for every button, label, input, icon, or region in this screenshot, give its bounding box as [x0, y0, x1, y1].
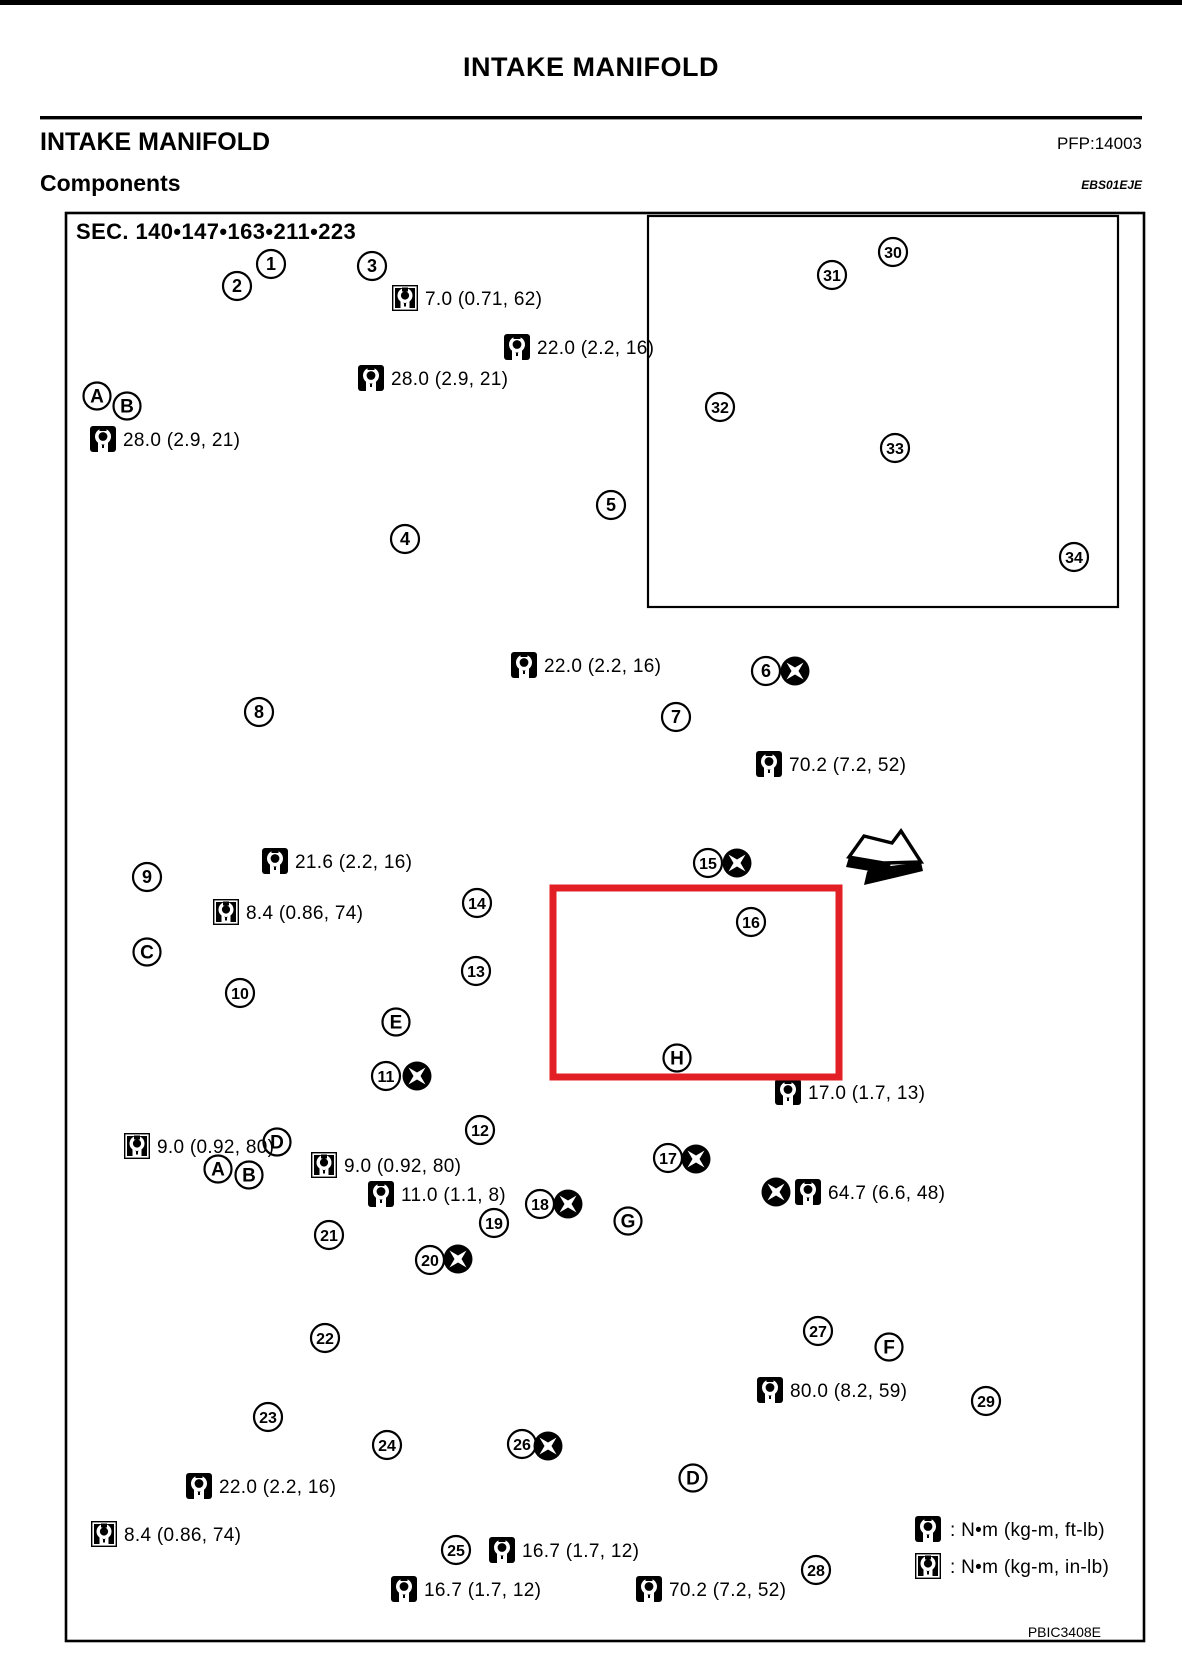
svg-text:INTAKE MANIFOLD: INTAKE MANIFOLD [463, 52, 719, 82]
svg-text:7: 7 [671, 707, 681, 727]
svg-text:20: 20 [421, 1253, 439, 1270]
svg-text:12: 12 [471, 1123, 489, 1140]
svg-text:14: 14 [468, 896, 486, 913]
svg-text:F: F [883, 1338, 895, 1359]
svg-text:PFP:14003: PFP:14003 [1057, 134, 1142, 153]
svg-text:64.7 (6.6, 48): 64.7 (6.6, 48) [828, 1183, 945, 1204]
svg-text:34: 34 [1065, 550, 1083, 567]
svg-text:31: 31 [823, 268, 841, 285]
svg-text:21.6 (2.2, 16): 21.6 (2.2, 16) [295, 852, 412, 873]
svg-text:8.4 (0.86, 74): 8.4 (0.86, 74) [124, 1525, 241, 1546]
svg-text:3: 3 [367, 256, 377, 276]
svg-text:15: 15 [699, 856, 717, 873]
svg-text:17.0 (1.7, 13): 17.0 (1.7, 13) [808, 1083, 925, 1104]
svg-text:22: 22 [316, 1331, 334, 1348]
svg-text:22.0 (2.2, 16): 22.0 (2.2, 16) [537, 338, 654, 359]
svg-text:80.0 (8.2, 59): 80.0 (8.2, 59) [790, 1381, 907, 1402]
svg-text:70.2 (7.2, 52): 70.2 (7.2, 52) [669, 1580, 786, 1601]
svg-text:D: D [686, 1469, 700, 1490]
svg-text:30: 30 [884, 245, 902, 262]
svg-text:: N•m (kg-m, ft-lb): : N•m (kg-m, ft-lb) [950, 1520, 1105, 1541]
svg-text:29: 29 [977, 1394, 995, 1411]
svg-text:: N•m (kg-m, in-lb): : N•m (kg-m, in-lb) [950, 1557, 1109, 1578]
svg-text:28.0 (2.9, 21): 28.0 (2.9, 21) [123, 430, 240, 451]
svg-text:6: 6 [761, 661, 771, 681]
svg-text:A: A [211, 1160, 225, 1181]
svg-text:13: 13 [467, 964, 485, 981]
svg-text:26: 26 [513, 1437, 531, 1454]
svg-text:A: A [90, 387, 104, 408]
svg-text:Components: Components [40, 170, 181, 196]
svg-text:22.0 (2.2, 16): 22.0 (2.2, 16) [544, 656, 661, 677]
svg-text:11: 11 [378, 1069, 395, 1086]
svg-text:C: C [140, 943, 154, 964]
svg-text:H: H [670, 1049, 684, 1070]
svg-text:27: 27 [809, 1324, 827, 1341]
svg-text:9: 9 [142, 867, 152, 887]
svg-text:17: 17 [659, 1151, 677, 1168]
svg-text:23: 23 [259, 1410, 277, 1427]
svg-text:28.0 (2.9, 21): 28.0 (2.9, 21) [391, 369, 508, 390]
svg-text:B: B [120, 397, 134, 418]
svg-text:9.0 (0.92, 80): 9.0 (0.92, 80) [157, 1137, 274, 1158]
svg-text:19: 19 [485, 1216, 503, 1233]
svg-text:10: 10 [231, 986, 249, 1003]
svg-text:21: 21 [320, 1228, 338, 1245]
svg-text:11.0 (1.1, 8): 11.0 (1.1, 8) [401, 1185, 506, 1206]
svg-text:16.7 (1.7, 12): 16.7 (1.7, 12) [522, 1541, 639, 1562]
svg-text:16.7 (1.7, 12): 16.7 (1.7, 12) [424, 1580, 541, 1601]
svg-text:32: 32 [711, 400, 729, 417]
svg-text:22.0 (2.2, 16): 22.0 (2.2, 16) [219, 1477, 336, 1498]
svg-text:7.0 (0.71, 62): 7.0 (0.71, 62) [425, 289, 542, 310]
svg-text:E: E [390, 1013, 403, 1034]
svg-text:1: 1 [266, 254, 276, 274]
svg-text:24: 24 [378, 1438, 396, 1455]
svg-text:25: 25 [447, 1543, 465, 1560]
svg-text:18: 18 [531, 1197, 549, 1214]
svg-text:16: 16 [742, 915, 760, 932]
svg-text:5: 5 [606, 495, 616, 515]
svg-text:28: 28 [807, 1563, 825, 1580]
svg-text:9.0 (0.92, 80): 9.0 (0.92, 80) [344, 1156, 461, 1177]
svg-text:EBS01EJE: EBS01EJE [1081, 178, 1143, 192]
svg-text:INTAKE MANIFOLD: INTAKE MANIFOLD [40, 128, 270, 156]
svg-text:2: 2 [232, 276, 242, 296]
svg-text:SEC. 140•147•163•211•223: SEC. 140•147•163•211•223 [76, 219, 356, 244]
svg-text:G: G [621, 1212, 636, 1233]
svg-text:70.2 (7.2, 52): 70.2 (7.2, 52) [789, 755, 906, 776]
svg-text:8: 8 [254, 702, 264, 722]
svg-text:8.4 (0.86, 74): 8.4 (0.86, 74) [246, 903, 363, 924]
svg-text:4: 4 [400, 529, 410, 549]
svg-text:B: B [242, 1166, 256, 1187]
svg-text:PBIC3408E: PBIC3408E [1028, 1624, 1101, 1640]
svg-text:33: 33 [886, 441, 904, 458]
